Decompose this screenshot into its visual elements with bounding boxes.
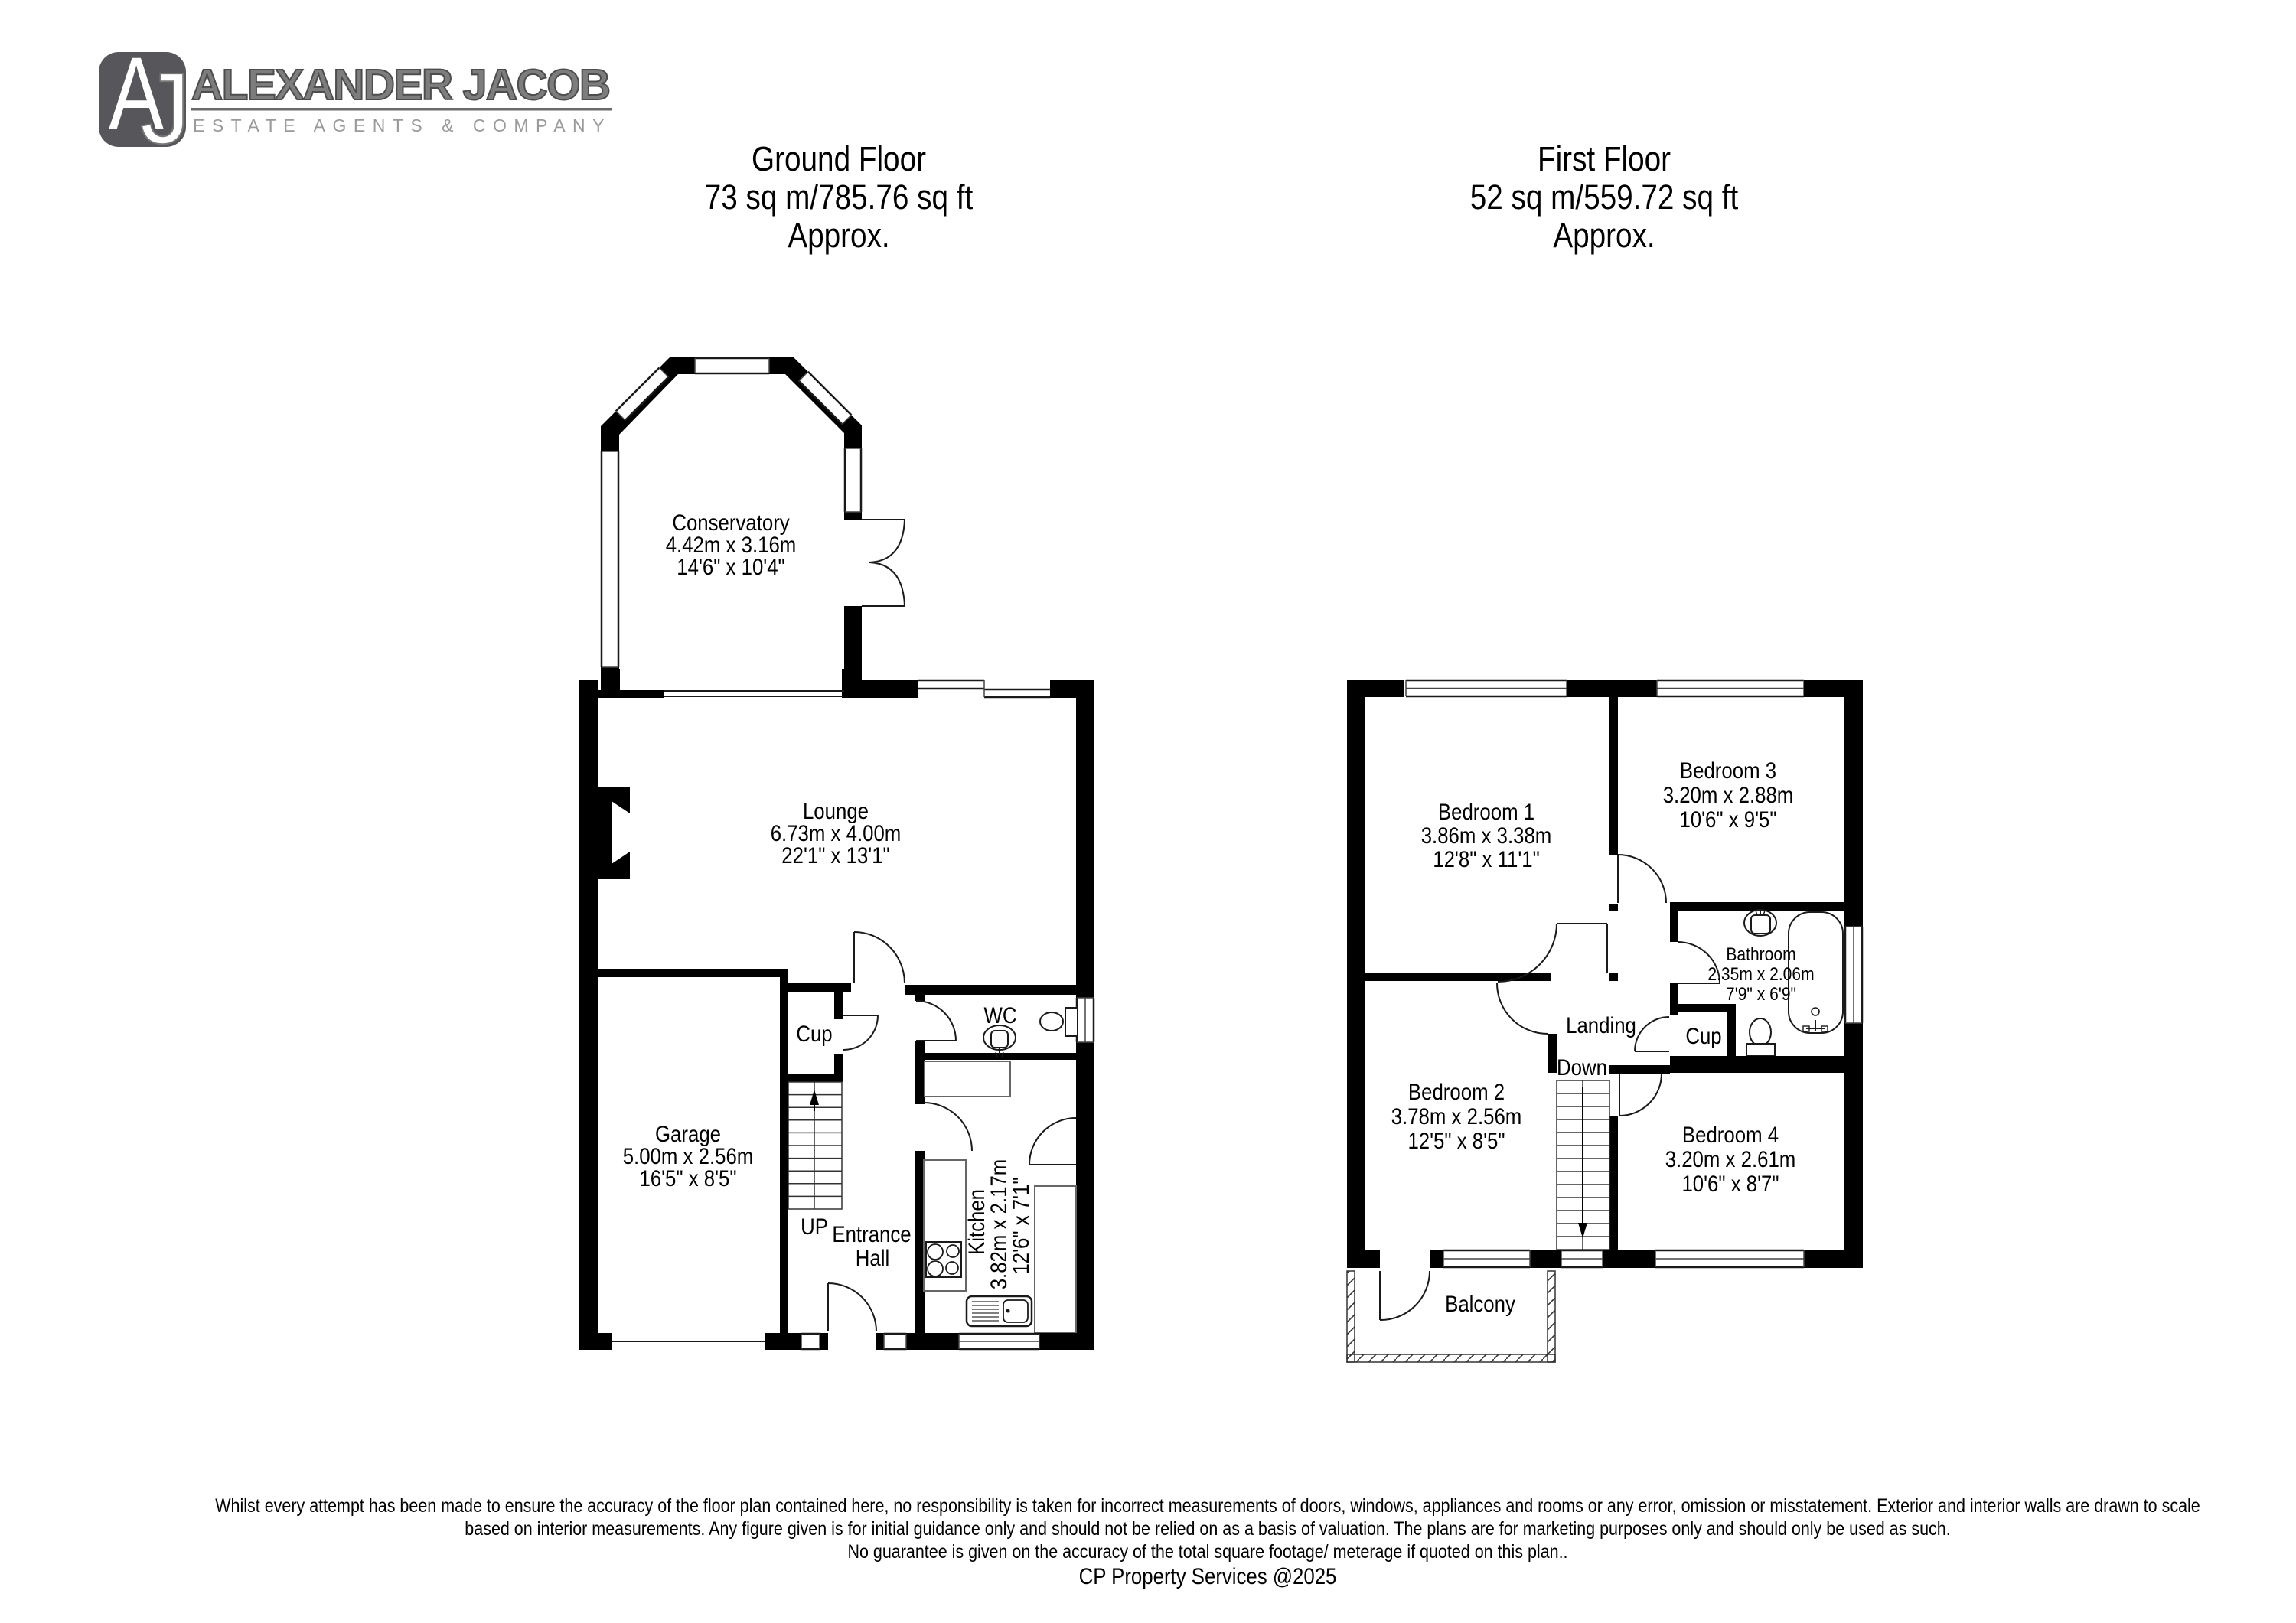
svg-text:73 sq m/785.76 sq ft: 73 sq m/785.76 sq ft bbox=[705, 178, 974, 216]
svg-text:Cup: Cup bbox=[1685, 1023, 1721, 1048]
svg-text:16'5" x 8'5": 16'5" x 8'5" bbox=[639, 1165, 736, 1191]
svg-text:3.20m x 2.88m: 3.20m x 2.88m bbox=[1663, 782, 1794, 807]
svg-text:12'5" x 8'5": 12'5" x 8'5" bbox=[1407, 1128, 1505, 1153]
svg-text:Ground Floor: Ground Floor bbox=[752, 139, 926, 178]
svg-text:10'6" x 9'5": 10'6" x 9'5" bbox=[1679, 807, 1776, 832]
svg-text:Balcony: Balcony bbox=[1445, 1291, 1515, 1316]
svg-text:Entrance: Entrance bbox=[832, 1221, 911, 1247]
svg-text:Bedroom 4: Bedroom 4 bbox=[1682, 1122, 1779, 1147]
svg-text:14'6" x 10'4": 14'6" x 10'4" bbox=[677, 554, 784, 579]
svg-text:Approx.: Approx. bbox=[788, 216, 889, 254]
svg-text:Cup: Cup bbox=[796, 1021, 832, 1046]
svg-text:No guarantee is given on the a: No guarantee is given on the accuracy of… bbox=[847, 1540, 1567, 1562]
svg-text:Bedroom 3: Bedroom 3 bbox=[1680, 758, 1776, 783]
svg-text:CP Property Services @2025: CP Property Services @2025 bbox=[1079, 1563, 1337, 1589]
svg-text:Bedroom 1: Bedroom 1 bbox=[1438, 799, 1534, 824]
svg-text:based on interior measurements: based on interior measurements. Any figu… bbox=[465, 1517, 1950, 1539]
svg-text:Hall: Hall bbox=[856, 1245, 889, 1270]
svg-text:Approx.: Approx. bbox=[1553, 216, 1655, 254]
svg-text:ALEXANDER JACOB: ALEXANDER JACOB bbox=[191, 60, 612, 109]
svg-text:Landing: Landing bbox=[1566, 1012, 1636, 1038]
svg-text:UP: UP bbox=[801, 1214, 828, 1239]
svg-text:3.20m x 2.61m: 3.20m x 2.61m bbox=[1665, 1146, 1796, 1172]
svg-text:Bedroom 2: Bedroom 2 bbox=[1408, 1079, 1505, 1104]
svg-text:Down: Down bbox=[1557, 1054, 1607, 1080]
svg-text:2.35m x 2.06m: 2.35m x 2.06m bbox=[1707, 963, 1814, 984]
svg-text:12'8" x 11'1": 12'8" x 11'1" bbox=[1433, 846, 1540, 872]
svg-text:3.78m x 2.56m: 3.78m x 2.56m bbox=[1391, 1103, 1522, 1129]
svg-text:22'1" x 13'1": 22'1" x 13'1" bbox=[781, 842, 889, 868]
svg-text:J: J bbox=[140, 52, 191, 165]
svg-text:Bathroom: Bathroom bbox=[1726, 943, 1795, 964]
svg-text:52 sq m/559.72 sq ft: 52 sq m/559.72 sq ft bbox=[1470, 178, 1739, 216]
svg-text:ESTATE AGENTS & COMPANY: ESTATE AGENTS & COMPANY bbox=[193, 116, 610, 135]
svg-text:10'6" x 8'7": 10'6" x 8'7" bbox=[1681, 1171, 1779, 1196]
svg-text:Whilst every attempt has been: Whilst every attempt has been made to en… bbox=[215, 1494, 2200, 1516]
svg-text:First Floor: First Floor bbox=[1538, 139, 1671, 178]
svg-text:12'6" x 7'1": 12'6" x 7'1" bbox=[1008, 1177, 1033, 1274]
svg-text:3.86m x 3.38m: 3.86m x 3.38m bbox=[1421, 823, 1552, 848]
svg-text:WC: WC bbox=[984, 1002, 1017, 1028]
svg-text:7'9" x 6'9": 7'9" x 6'9" bbox=[1726, 983, 1796, 1004]
